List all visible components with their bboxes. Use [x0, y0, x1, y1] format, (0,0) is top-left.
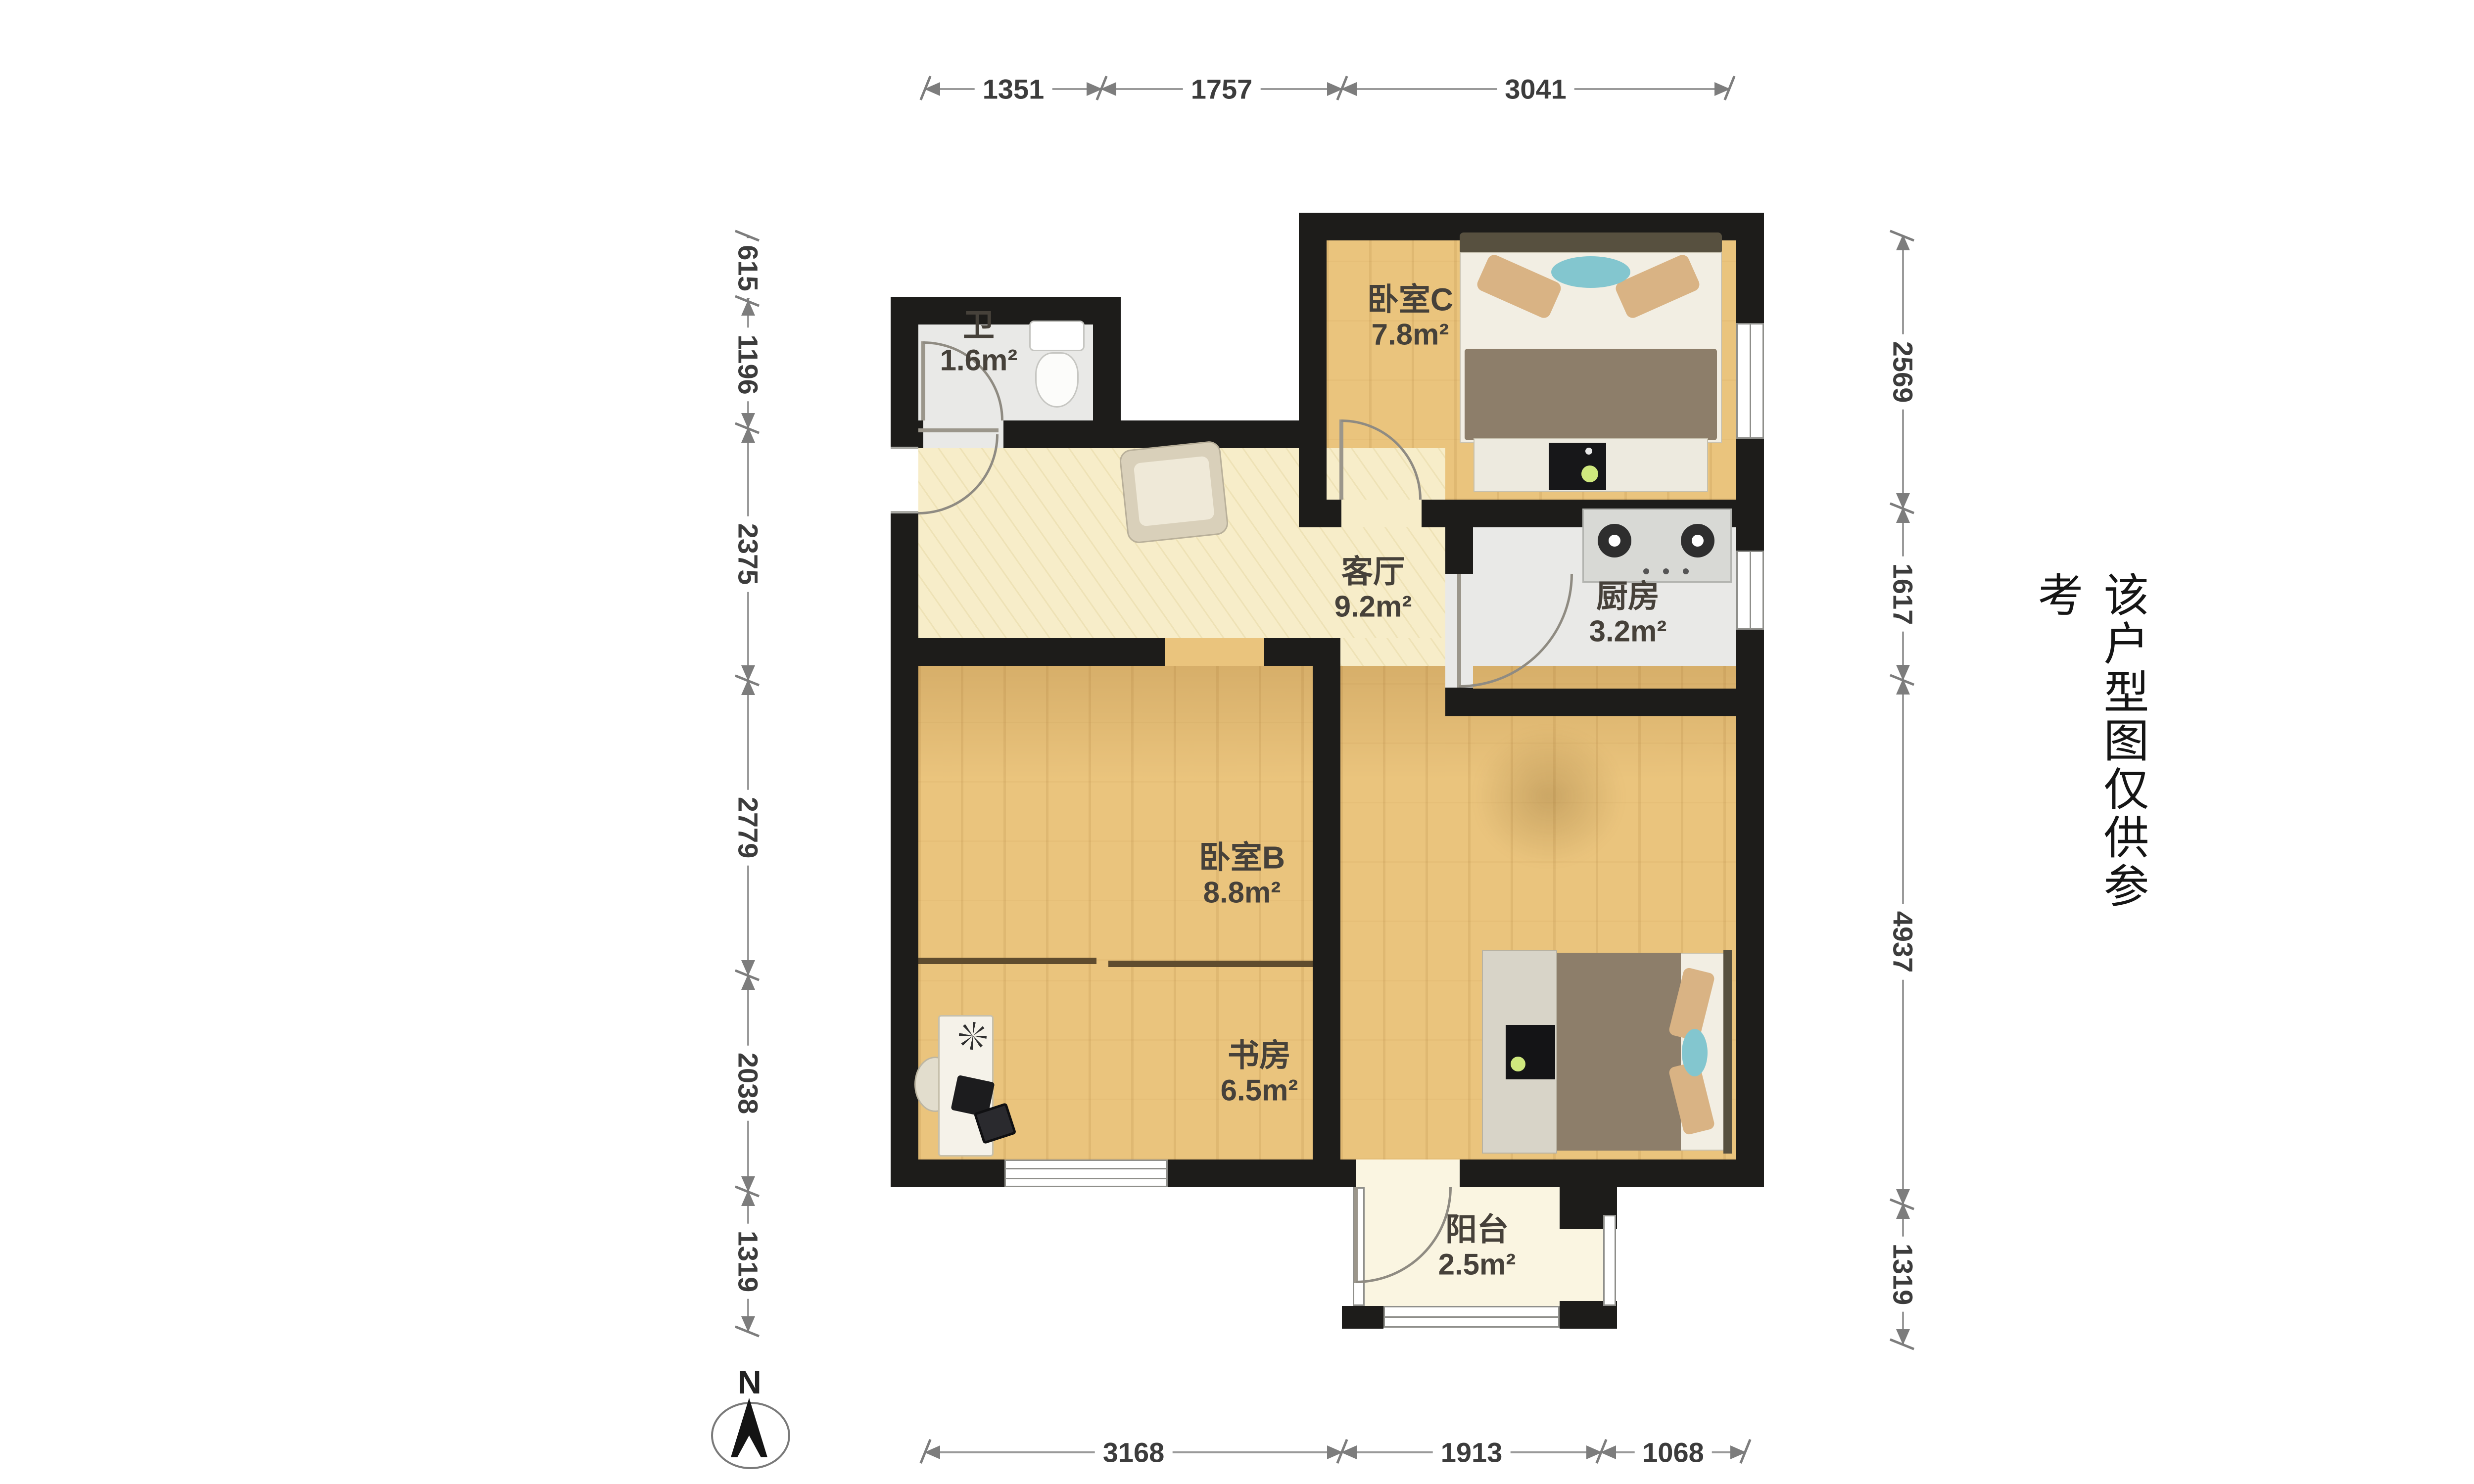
room-name: 卫	[940, 308, 1018, 344]
window	[1736, 323, 1764, 439]
entry-door-leaf	[918, 428, 999, 432]
room-name: 厨房	[1589, 579, 1667, 615]
room-label-bedroom-b: 卧室B 8.8m²	[1199, 840, 1285, 909]
room-name: 客厅	[1334, 555, 1412, 590]
toilet-icon	[1035, 352, 1079, 408]
partition-line	[1108, 961, 1313, 967]
room-area: 7.8m²	[1367, 318, 1453, 351]
room-label-kitchen: 厨房 3.2m²	[1589, 579, 1667, 648]
dim-value: 2038	[732, 1045, 764, 1121]
passage-floor	[1340, 638, 1445, 666]
dim-value: 1757	[1183, 73, 1261, 105]
room-label-bedroom-c: 卧室C 7.8m²	[1367, 282, 1453, 351]
room-name: 书房	[1221, 1038, 1298, 1074]
dim-left-1319: 1319	[733, 1191, 763, 1331]
bedroom-b-doorway	[1165, 638, 1264, 666]
dim-value: 2375	[732, 516, 764, 592]
entry-jamb	[891, 447, 918, 449]
bed-icon	[1482, 950, 1732, 1154]
wall	[1299, 213, 1327, 527]
window	[1004, 1159, 1168, 1187]
bedroom-b-floor	[918, 666, 1313, 961]
dim-value: 2779	[732, 790, 764, 866]
window	[1736, 551, 1764, 630]
room-name: 卧室C	[1367, 282, 1453, 318]
dim-left-2779: 2779	[733, 680, 763, 975]
dim-value: 3041	[1497, 73, 1574, 105]
dim-right-1617: 1617	[1888, 508, 1918, 680]
dim-right-1319: 1319	[1888, 1204, 1918, 1344]
plant-icon	[959, 1022, 987, 1050]
disclaimer-text: 该户型图仅供参考	[2024, 571, 2155, 918]
dim-value: 4937	[1887, 904, 1919, 980]
wall	[1313, 638, 1340, 1187]
room-area: 3.2m²	[1589, 614, 1667, 648]
dim-bottom-1913: 1913	[1342, 1438, 1601, 1467]
dim-value: 615	[732, 238, 764, 298]
room-area: 9.2m²	[1334, 590, 1412, 623]
dim-value: 1319	[1887, 1236, 1919, 1312]
wall	[1342, 1306, 1383, 1329]
room-label-bathroom: 卫 1.6m²	[940, 308, 1018, 377]
bed-icon	[1460, 232, 1722, 500]
dim-value: 1351	[975, 73, 1052, 105]
entry-jamb	[891, 511, 918, 513]
dim-top-3041: 3041	[1342, 74, 1729, 104]
toilet-icon	[1029, 321, 1085, 351]
room-area: 1.6m²	[940, 343, 1018, 376]
wall	[891, 638, 1340, 666]
partition-line	[918, 958, 1096, 964]
balcony-doorway	[1356, 1159, 1460, 1187]
dim-value: 1319	[732, 1223, 764, 1299]
room-name: 卧室B	[1199, 840, 1285, 876]
dim-value: 3168	[1095, 1437, 1173, 1469]
room-label-study: 书房 6.5m²	[1221, 1038, 1298, 1107]
floor-plan: 卧室C 7.8m² 卫 1.6m² 客厅 9.2m² 厨房 3.2m² 卧室B …	[0, 0, 2474, 1484]
bedroom-c-doorway	[1341, 500, 1422, 527]
window	[1603, 1215, 1616, 1306]
compass-north-label: N	[727, 1363, 772, 1401]
room-label-balcony: 阳台 2.5m²	[1438, 1212, 1516, 1281]
stove-icon	[1582, 509, 1732, 583]
dim-top-1351: 1351	[925, 74, 1101, 104]
room-area: 2.5m²	[1438, 1248, 1516, 1281]
wall	[1445, 689, 1764, 716]
dim-left-2375: 2375	[733, 428, 763, 680]
dim-top-1757: 1757	[1101, 74, 1342, 104]
sofa-icon	[1119, 440, 1230, 544]
dim-value: 1068	[1634, 1437, 1712, 1469]
window	[1383, 1306, 1560, 1328]
room-label-living: 客厅 9.2m²	[1334, 555, 1412, 623]
dim-value: 1617	[1887, 556, 1919, 632]
dim-left-615: 615	[733, 235, 763, 301]
dim-left-2038: 2038	[733, 975, 763, 1191]
dim-value: 1196	[732, 327, 764, 402]
floorplan-page: { "rooms": [ {"name": "卧室C", "area": "7.…	[0, 0, 2474, 1484]
compass-needle-notch	[737, 1436, 761, 1458]
room-name: 阳台	[1438, 1212, 1516, 1248]
dim-bottom-1068: 1068	[1601, 1438, 1745, 1467]
dim-value: 1913	[1433, 1437, 1511, 1469]
dim-right-4937: 4937	[1888, 680, 1918, 1204]
dim-value: 2569	[1887, 334, 1919, 410]
dim-bottom-3168: 3168	[925, 1438, 1342, 1467]
room-area: 6.5m²	[1221, 1073, 1298, 1107]
room-area: 8.8m²	[1199, 876, 1285, 909]
dim-right-2569: 2569	[1888, 235, 1918, 508]
dim-left-1196: 1196	[733, 301, 763, 428]
